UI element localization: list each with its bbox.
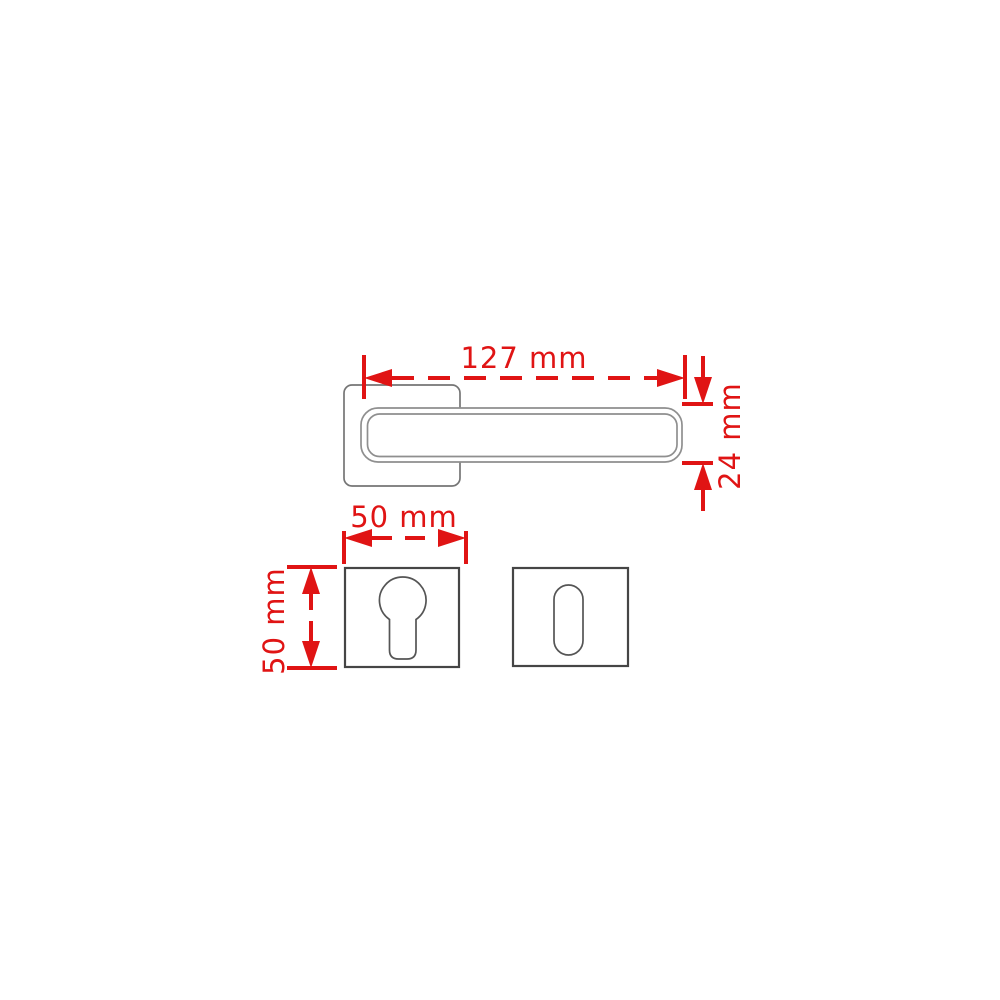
arrowhead-up: [302, 567, 320, 594]
cylinder-escutcheon: [345, 568, 459, 667]
dimension-label-handle-height: 24 mm: [713, 382, 747, 490]
arrowhead-down: [302, 641, 320, 668]
handle-lever-inner: [368, 414, 678, 457]
dimension-plate-height: 50 mm: [257, 567, 337, 675]
key-escutcheon: [513, 568, 628, 666]
door-handle-technical-drawing: 127 mm 24 mm 50 mm 50 mm: [0, 0, 1000, 1000]
dimension-label-plate-width: 50 mm: [350, 500, 458, 534]
oval-keyhole: [554, 585, 583, 655]
dimension-label-handle-length: 127 mm: [460, 341, 587, 375]
arrowhead-down: [694, 377, 712, 404]
dimension-plate-width: 50 mm: [344, 500, 466, 564]
arrowhead-right: [657, 369, 685, 387]
handle-front-view: [344, 385, 682, 486]
dimension-handle-height: 24 mm: [682, 356, 747, 511]
arrowhead-up: [694, 463, 712, 490]
dimension-label-plate-height: 50 mm: [257, 567, 291, 675]
